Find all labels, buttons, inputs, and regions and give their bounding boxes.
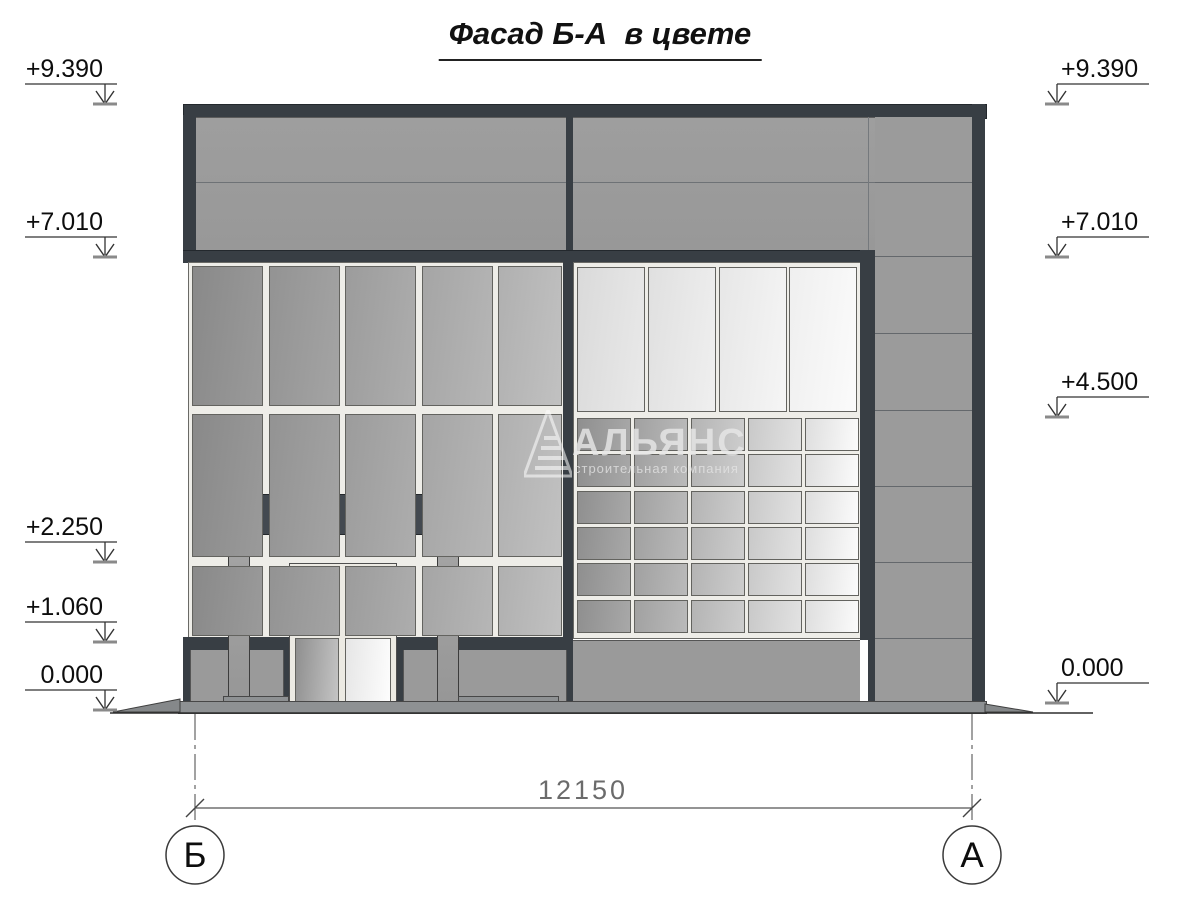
right-window-left-frame [563, 262, 573, 640]
base-band-right-section [573, 640, 860, 708]
pilaster-seam [875, 638, 972, 639]
small-glass-pane [748, 454, 802, 487]
attic-panel-band [196, 117, 972, 251]
attic-left-edge [183, 115, 196, 252]
curtainwall-pane [192, 566, 263, 636]
curtainwall-pane [498, 266, 562, 406]
pilaster-seam [875, 486, 972, 487]
curtainwall-pane [269, 266, 340, 406]
small-glass-pane [691, 600, 745, 633]
attic-center-divider [566, 117, 573, 250]
small-glass-pane [805, 600, 859, 633]
small-glass-pane [634, 491, 688, 524]
door-glass-bottom-right [345, 638, 391, 704]
small-glass-pane [691, 563, 745, 596]
curtainwall-pane [345, 414, 416, 557]
small-glass-pane [691, 454, 745, 487]
attic-right-seam [868, 117, 869, 250]
small-glass-pane [634, 418, 688, 451]
tall-glass-pane [789, 267, 857, 412]
small-glass-pane [577, 600, 631, 633]
pilaster-seam [875, 256, 972, 257]
pilaster-seam [875, 182, 972, 183]
small-glass-pane [691, 491, 745, 524]
small-glass-pane [748, 600, 802, 633]
small-glass-pane [577, 454, 631, 487]
small-glass-pane [634, 527, 688, 560]
small-glass-pane [577, 491, 631, 524]
curtainwall-pane [269, 566, 340, 636]
curtainwall-pane [422, 566, 493, 636]
curtainwall-pane [422, 266, 493, 406]
curtainwall-pane [269, 414, 340, 557]
curtainwall-pane [345, 566, 416, 636]
building-plinth [178, 701, 987, 714]
curtainwall-pane [498, 414, 562, 557]
door-glass-bottom-left [295, 638, 339, 704]
small-glass-pane [805, 563, 859, 596]
small-glass-pane [577, 418, 631, 451]
pilaster-seam [875, 562, 972, 563]
small-glass-pane [691, 527, 745, 560]
attic-mid-seam [196, 182, 972, 183]
small-glass-pane [634, 563, 688, 596]
right-window-right-frame [860, 250, 875, 640]
small-glass-pane [805, 454, 859, 487]
small-glass-pane [691, 418, 745, 451]
small-glass-pane [805, 491, 859, 524]
curtainwall-pane [422, 414, 493, 557]
small-glass-pane [577, 527, 631, 560]
pilaster-seam [875, 333, 972, 334]
right-edge-lower-strip [868, 640, 875, 707]
right-pilaster-panels [875, 117, 972, 707]
small-glass-pane [577, 563, 631, 596]
small-glass-pane [748, 491, 802, 524]
curtainwall-pane [192, 414, 263, 557]
small-glass-pane [634, 454, 688, 487]
curtainwall-pane [498, 566, 562, 636]
small-glass-pane [748, 527, 802, 560]
pilaster-seam [875, 410, 972, 411]
small-glass-pane [748, 563, 802, 596]
building-elevation [0, 0, 1200, 900]
tall-glass-pane [648, 267, 716, 412]
small-glass-pane [748, 418, 802, 451]
small-glass-pane [634, 600, 688, 633]
right-building-edge [972, 104, 985, 707]
tall-glass-pane [719, 267, 787, 412]
curtainwall-pane [192, 266, 263, 406]
small-glass-pane [805, 418, 859, 451]
tall-glass-pane [577, 267, 645, 412]
curtainwall-pane [345, 266, 416, 406]
small-glass-pane [805, 527, 859, 560]
facade-drawing: Фасад Б-А в цвете [0, 0, 1200, 900]
